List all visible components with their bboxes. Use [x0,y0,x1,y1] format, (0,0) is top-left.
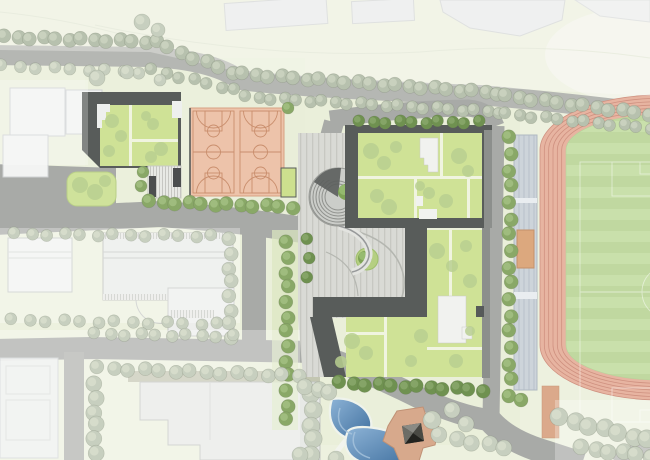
tree-canopy-highlight [187,53,195,61]
tree-canopy-highlight [618,445,627,454]
tree-canopy-highlight [592,102,600,110]
tree-fade [29,63,41,75]
tree-canopy-highlight [322,386,331,395]
tree-street [575,98,589,112]
tree-canopy-highlight [75,33,83,41]
tree-fade [169,365,183,379]
equipment-green-box [281,168,296,197]
tree-fade [118,330,130,342]
tree-canopy-highlight [353,76,361,84]
tree-street [619,118,631,130]
tree-canopy-highlight [283,103,290,110]
tree-fade [182,363,196,377]
tree-canopy-highlight [452,382,460,390]
tree-site [514,393,528,407]
tree-canopy-highlight [168,332,175,339]
tree-fade [179,328,191,340]
tree-site [281,279,295,293]
tree-fade [423,411,441,429]
tree-street [601,103,615,117]
tree-fade [86,431,102,447]
tree-fade [224,274,238,288]
roof-tree [381,199,397,215]
tree-canopy-highlight [478,386,486,394]
tree-canopy-highlight [610,425,620,435]
tree-street [604,119,616,131]
tree-fade [550,408,568,426]
tree-dark [447,116,459,128]
tree-site [282,102,294,114]
tree-canopy-highlight [392,100,399,107]
tree-street [315,94,327,106]
tree-dark [476,384,490,398]
tree-fade [191,231,203,243]
tree-canopy-highlight [302,272,309,279]
tree-street [498,88,512,102]
roof-tree [145,151,157,163]
tree-site [504,244,518,258]
tree-street [525,112,537,124]
roof-path [129,105,132,166]
tree-street [577,114,589,126]
roof-tree [115,130,127,142]
tree-canopy-highlight [506,245,514,253]
tree-fade [222,316,236,330]
tree-dark [405,116,417,128]
tree-fade [261,369,275,383]
tree-site [271,200,285,214]
tree-fade [579,418,597,436]
tree-fade [73,315,85,327]
roof-tree [105,114,119,128]
tree-canopy-highlight [631,122,638,129]
tree-street [189,73,201,85]
tree-site [245,200,259,214]
tree-canopy-highlight [389,79,397,87]
tree-street [567,116,579,128]
tree-fade [59,314,71,326]
tree-canopy-highlight [385,380,393,388]
tree-street [406,101,418,113]
tree-canopy-highlight [169,199,177,207]
tree-canopy-highlight [93,231,100,238]
tree-canopy-highlight [618,104,626,112]
tree-site [502,130,516,144]
tree-fade [64,63,76,75]
tree-canopy-highlight [226,275,234,283]
tree-site [286,201,300,215]
tree-canopy-highlight [90,418,99,427]
tree-fade [297,379,313,395]
tree-street [388,77,402,91]
tree-canopy-highlight [436,384,444,392]
tree-canopy-highlight [382,102,389,109]
tree-street [483,105,495,117]
tree-canopy-highlight [277,70,285,78]
tree-street [464,83,478,97]
tree-canopy-highlight [197,320,204,327]
tree-canopy-highlight [240,91,247,98]
tree-canopy-highlight [143,319,150,326]
tree-fade [120,65,134,79]
tree-canopy-highlight [276,369,284,377]
tree-dark [461,382,475,396]
tree-fade [244,367,258,381]
tree-fade [222,289,236,303]
roof-tree [370,189,384,203]
tree-canopy-highlight [598,421,608,431]
tree-canopy-highlight [574,440,583,449]
tree-fade [86,376,102,392]
tree-canopy-highlight [581,419,591,429]
tree-canopy-highlight [628,107,636,115]
tree-canopy-highlight [590,443,599,452]
tree-canopy-highlight [506,180,514,188]
tree-canopy-highlight [236,67,244,75]
tree-fade [133,67,145,79]
tree-canopy-highlight [627,430,637,440]
tree-canopy-highlight [281,93,288,100]
roof-tree [390,141,402,153]
tree-canopy-highlight [411,380,419,388]
roof-path [358,176,482,179]
tree-canopy-highlight [359,380,367,388]
tree-canopy-highlight [140,363,148,371]
tree-canopy-highlight [229,84,236,91]
tree-canopy-highlight [446,404,455,413]
tree-canopy-highlight [223,317,231,325]
tree-street [239,90,251,102]
tree-fade [627,446,643,460]
tree-canopy-highlight [206,230,213,237]
tree-canopy-highlight [304,419,314,429]
tree-canopy-highlight [223,264,231,272]
tree-street [311,72,325,86]
tree-fade [39,316,51,328]
roof-tree [405,355,417,367]
tree-canopy-highlight [503,228,511,236]
tree-street [551,113,563,125]
tree-fade [136,327,148,339]
tree-site [502,164,516,178]
tree-canopy-highlight [262,199,270,207]
tree-canopy-highlight [280,296,288,304]
tree-street [160,40,174,54]
tree-canopy-highlight [506,342,514,350]
tree-canopy-highlight [212,318,219,325]
tree-canopy-highlight [280,268,288,276]
tree-fade [176,317,188,329]
tree-site [281,339,295,353]
tree-fade [106,228,118,240]
tree-site [502,358,516,372]
tree-street [200,77,212,89]
tree-canopy-highlight [484,437,493,446]
tree-fade [89,70,105,86]
tree-canopy-highlight [146,64,153,71]
tree-fade [154,74,166,86]
roof-tree [414,329,428,343]
tree-canopy-highlight [280,385,288,393]
tree-canopy-highlight [404,81,412,89]
tree-fade [224,247,238,261]
tree-canopy-highlight [126,230,133,237]
tree-canopy-highlight [109,363,117,371]
tree-canopy-highlight [474,116,481,123]
tree-canopy-highlight [122,365,130,373]
tree-fade [88,390,104,406]
tree-canopy-highlight [129,318,136,325]
tree-canopy-highlight [184,365,192,373]
roof-tree [429,243,445,259]
tree-fade [573,439,589,455]
tree-canopy-highlight [75,317,82,324]
tree-dark [458,117,470,129]
tree-fade [59,227,71,239]
tree-canopy-highlight [137,329,144,336]
tree-canopy-highlight [100,65,107,72]
tree-canopy-highlight [180,329,187,336]
tree-canopy-highlight [162,69,169,76]
tree-canopy-highlight [161,41,169,49]
tree-street [216,82,228,94]
tree-canopy-highlight [594,118,601,125]
tree-canopy-highlight [579,116,586,123]
tree-dark [358,378,372,392]
tree-canopy-highlight [163,317,170,324]
tree-canopy-highlight [515,394,523,402]
tree-fade [196,319,208,331]
roof-path [440,133,443,176]
tree-fade [127,316,139,328]
tree-canopy-highlight [202,56,210,64]
tree-fade [304,401,322,419]
tree-canopy-highlight [64,35,72,43]
tree-site [168,197,182,211]
tree-canopy-highlight [287,72,295,80]
tree-fade [496,440,512,456]
tree-fade [41,230,53,242]
roof-tree [415,181,425,191]
tree-canopy-highlight [316,96,323,103]
tree-canopy-highlight [223,233,231,241]
tree-canopy-highlight [569,414,579,424]
facade-notch [476,306,484,317]
tree-site [504,275,518,289]
rooftop-structure [416,196,423,206]
tree-dark [368,116,380,128]
tree-canopy-highlight [451,433,460,442]
roof-tree [463,274,477,288]
tree-fade [321,384,337,400]
grandstand [514,135,537,390]
tree-site [504,310,518,324]
tree-canopy-highlight [13,32,21,40]
tree-canopy-highlight [440,84,448,92]
tree-fade [463,435,479,451]
tree-street [442,103,454,115]
tree-site [279,384,293,398]
roof-tree [451,148,467,164]
tree-canopy-highlight [484,106,491,113]
tree-street [340,98,352,110]
tree-canopy-highlight [107,329,114,336]
tree-canopy-highlight [333,376,341,384]
tree-canopy-highlight [28,229,35,236]
tree-canopy-highlight [90,447,99,456]
tree-canopy-highlight [294,370,302,378]
canopy-core [173,168,181,187]
roof-path [427,347,482,350]
tree-street [439,82,453,96]
tree-canopy-highlight [506,373,514,381]
tree-fade [222,232,236,246]
tree-canopy-highlight [515,110,522,117]
tree-fade [227,329,239,341]
tree-canopy-highlight [50,62,57,69]
tree-canopy-highlight [605,121,612,128]
tree-fade [304,430,322,448]
tree-canopy-highlight [367,100,374,107]
tree-street [286,71,300,85]
tree-canopy-highlight [195,198,203,206]
tree-site [281,251,295,265]
tree-canopy-highlight [251,69,259,77]
tree-canopy-highlight [136,181,143,188]
tree-canopy-highlight [291,95,298,102]
tree-canopy-highlight [328,75,336,83]
tree-canopy-highlight [283,341,291,349]
tree-fade [151,363,165,377]
tree-canopy-highlight [466,84,474,92]
tree-canopy-highlight [506,214,514,222]
tree-canopy-highlight [462,384,470,392]
tree-canopy-highlight [236,200,244,208]
roof-tree [335,356,347,368]
tree-dark [409,379,423,393]
tree-fade [134,14,150,30]
roof-tree [147,118,159,130]
tree-street [457,105,469,117]
tree-site [281,399,295,413]
tree-canopy-highlight [338,77,346,85]
tree-site [504,147,518,161]
tree-site [504,372,518,386]
tree-site [279,267,293,281]
roof-tree [423,187,435,199]
tree-canopy-highlight [425,413,435,423]
tree-canopy-highlight [152,24,160,32]
tree-canopy-highlight [503,166,511,174]
tree-street [124,34,138,48]
bleacher-gap [514,198,537,203]
tree-street [627,105,641,119]
tree-canopy-highlight [430,81,438,89]
tree-fade [14,61,26,73]
tree-fade [139,231,151,243]
tree-site [502,261,516,275]
tree-fade [197,330,209,342]
tree-fade [108,362,122,376]
tree-canopy-highlight [255,93,262,100]
tree-canopy-highlight [192,232,199,239]
bleacher-gap [514,292,537,299]
tree-site [219,197,233,211]
tree-canopy-highlight [503,131,511,139]
tree-canopy-highlight [280,413,288,421]
roof-tree [103,145,115,157]
tree-canopy-highlight [577,99,585,107]
tree-canopy-highlight [138,167,145,174]
tree-site [504,178,518,192]
roof-tree [359,346,373,360]
tree-street [0,29,11,43]
tree-canopy-highlight [24,33,32,41]
tree-canopy-highlight [263,370,271,378]
building-mass [405,228,427,317]
tree-canopy-highlight [100,36,108,44]
tree-street [499,107,511,119]
tree-street [413,82,427,96]
tree-dark [301,271,313,283]
tree-canopy-highlight [143,195,151,203]
roof-tree [377,156,391,170]
tree-dark [421,117,433,129]
tree-site [279,295,293,309]
tree-street [145,63,157,75]
tree-site [279,323,293,337]
tree-canopy-highlight [280,325,288,333]
tree-canopy-highlight [176,47,184,55]
tree-canopy-highlight [89,328,96,335]
tree-canopy-highlight [465,437,474,446]
tree-fade [482,436,498,452]
tree-fade [73,229,85,241]
tree-canopy-highlight [283,312,291,320]
tree-site [135,180,147,192]
tree-canopy-highlight [342,99,349,106]
tree-site [504,213,518,227]
tree-street [22,32,36,46]
tree-canopy-highlight [302,74,310,82]
tree-street [514,109,526,121]
tree-canopy-highlight [460,418,469,427]
tree-canopy-highlight [174,73,181,80]
tree-canopy-highlight [370,117,377,124]
tree-canopy-highlight [108,229,115,236]
tree-canopy-highlight [629,448,638,457]
tree-fade [8,227,20,239]
tree-canopy-highlight [294,449,303,458]
roof-tree [344,333,360,349]
roof-tree [462,165,474,177]
tree-canopy-highlight [90,392,99,401]
tree-canopy-highlight [226,248,234,256]
tree-canopy-highlight [262,72,270,80]
tree-canopy-highlight [87,377,96,386]
tree-canopy-highlight [198,331,205,338]
tree-canopy-highlight [542,112,549,119]
roof-path [132,139,178,142]
tree-fade [90,360,104,374]
tree-canopy-highlight [61,229,68,236]
tree-site [279,412,293,426]
tree-canopy-highlight [515,92,523,100]
tree-canopy-highlight [415,83,423,91]
tree-canopy-highlight [374,378,382,386]
tree-canopy-highlight [526,113,533,120]
tree-site [502,292,516,306]
